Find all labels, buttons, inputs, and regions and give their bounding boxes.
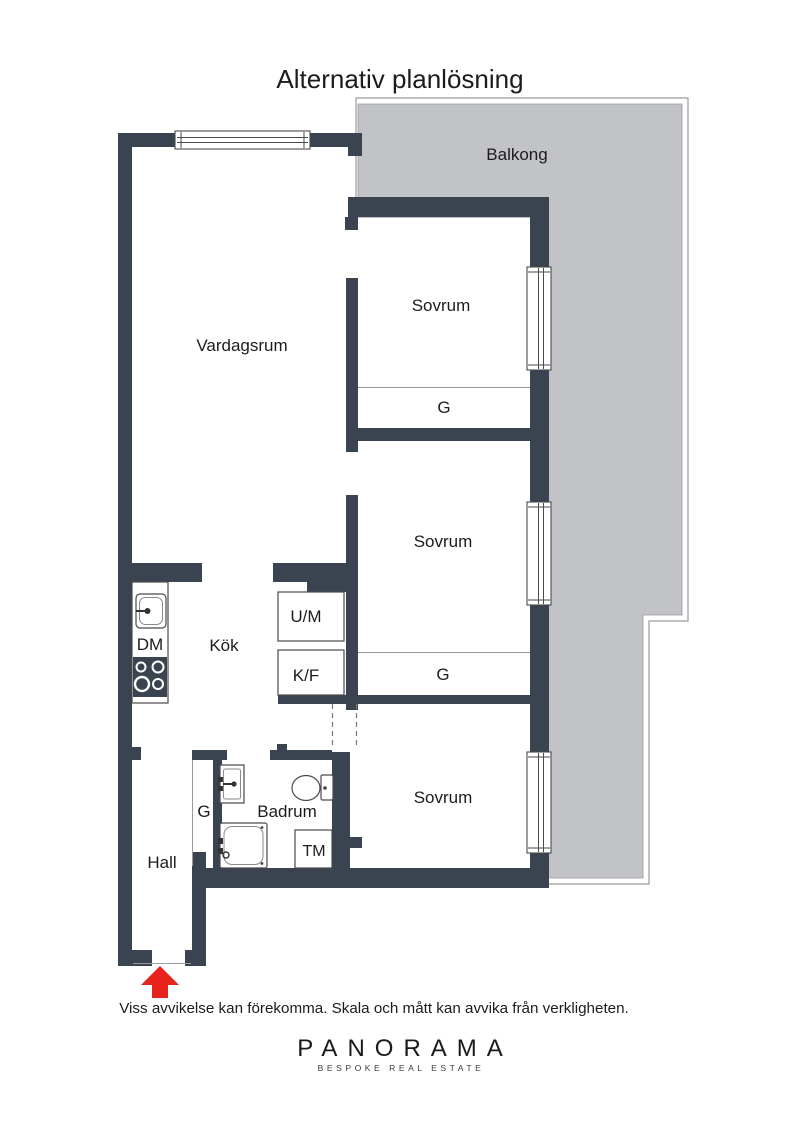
shower-icon — [218, 823, 267, 868]
wall-sovrum3-door-tab — [350, 837, 362, 848]
wall-hall-tab — [132, 747, 141, 760]
room-label-kok: Kök — [209, 636, 239, 655]
brand-logo-text: PANORAMA — [297, 1035, 513, 1062]
wall-g1-bottom — [350, 428, 549, 441]
closet-label-g3: G — [197, 802, 210, 821]
floorplan-canvas: Alternativ planlösning Balkong — [0, 0, 800, 1131]
closet-label-g2: G — [436, 665, 449, 684]
floorplan-page: Alternativ planlösning Balkong — [0, 0, 800, 1131]
appliance-label-um: U/M — [290, 607, 321, 626]
wall-right-a — [530, 217, 549, 267]
kitchen-sink-icon — [136, 594, 166, 628]
brand-tagline: BESPOKE REAL ESTATE — [318, 1063, 485, 1073]
room-label-sovrum-3: Sovrum — [414, 788, 473, 807]
wall-sovrum3-left — [332, 752, 350, 868]
wall-right-c — [530, 605, 549, 752]
window-sovrum3 — [527, 752, 551, 853]
closet-label-g1: G — [437, 398, 450, 417]
wall-balcony-door-tab — [348, 147, 362, 156]
footer: Viss avvikelse kan förekomma. Skala och … — [119, 1000, 629, 1073]
room-label-sovrum-2: Sovrum — [414, 532, 473, 551]
wall-top-a — [118, 133, 175, 147]
disclaimer-text: Viss avvikelse kan förekomma. Skala och … — [119, 1000, 629, 1017]
bathroom-sink-icon — [218, 765, 244, 803]
window-sovrum2 — [527, 502, 551, 605]
room-label-hall: Hall — [147, 853, 176, 872]
wall-badrum-top-a — [192, 750, 227, 760]
wall-g1-tab — [346, 438, 358, 452]
appliance-label-kf: K/F — [293, 666, 319, 685]
wall-right-d — [530, 853, 549, 888]
wall-sovrum1-top — [348, 197, 549, 217]
wall-right-b — [530, 370, 549, 502]
appliance-label-tm: TM — [302, 843, 325, 860]
walls — [118, 133, 549, 966]
room-label-vardagsrum: Vardagsrum — [196, 336, 287, 355]
windows — [175, 131, 551, 853]
window-top — [175, 131, 310, 149]
wall-left-outer — [118, 133, 132, 966]
wall-top-b — [310, 133, 362, 147]
room-label-balkong: Balkong — [486, 145, 547, 164]
room-label-sovrum-1: Sovrum — [412, 296, 471, 315]
toilet-icon — [292, 775, 333, 801]
wall-badrum-door-nub — [277, 744, 287, 751]
wall-vardagsrum-sovrum1 — [346, 278, 358, 450]
wall-um-step — [307, 582, 358, 592]
wall-kok-top-left — [132, 563, 202, 582]
appliance-label-dm: DM — [137, 635, 163, 654]
wall-kok-top-right — [273, 563, 358, 582]
wall-sovrum2-left — [346, 495, 358, 710]
wall-bottom — [192, 868, 549, 888]
window-sovrum1 — [527, 267, 551, 370]
balcony-floor — [358, 104, 682, 878]
stove-icon — [133, 657, 167, 697]
wall-sovrum1-door-tab — [345, 217, 358, 230]
room-label-badrum: Badrum — [257, 802, 317, 821]
wall-badrum-top-b — [270, 750, 332, 760]
entry-arrow-icon — [141, 966, 179, 998]
wall-kf-g2-bottom — [278, 695, 549, 704]
page-title: Alternativ planlösning — [276, 64, 523, 94]
